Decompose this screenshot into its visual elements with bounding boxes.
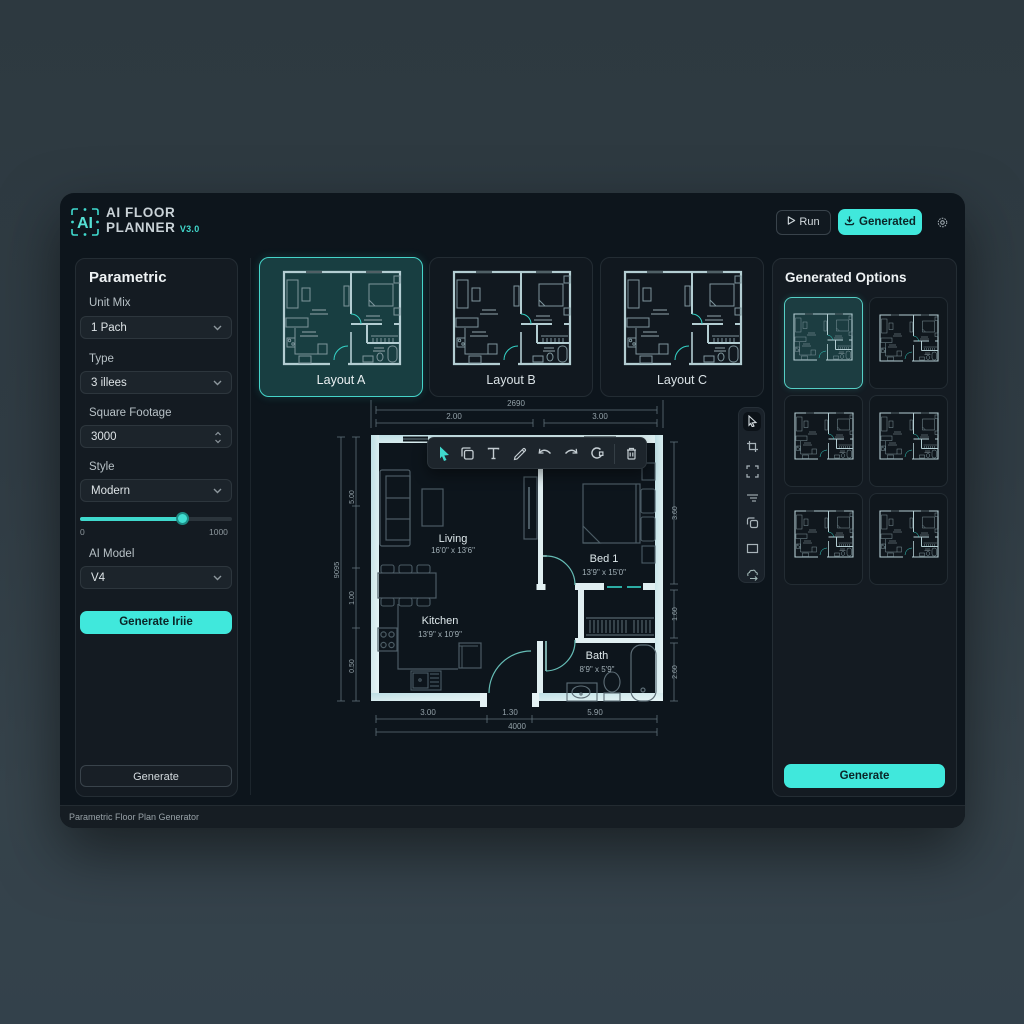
svg-text:Bed 1: Bed 1 bbox=[590, 553, 619, 565]
svg-text:8'9" x 5'9": 8'9" x 5'9" bbox=[580, 665, 615, 674]
svg-text:4000: 4000 bbox=[508, 722, 526, 731]
svg-text:1.00: 1.00 bbox=[349, 591, 356, 605]
svg-text:1.60: 1.60 bbox=[672, 607, 679, 621]
svg-text:1.30: 1.30 bbox=[502, 708, 518, 717]
svg-text:2.60: 2.60 bbox=[672, 665, 679, 679]
svg-text:16'0" x 13'6": 16'0" x 13'6" bbox=[431, 546, 475, 555]
svg-text:Kitchen: Kitchen bbox=[422, 615, 459, 627]
svg-text:9095: 9095 bbox=[332, 562, 341, 579]
svg-text:3.00: 3.00 bbox=[592, 412, 608, 421]
svg-text:13'9" x 10'9": 13'9" x 10'9" bbox=[418, 630, 462, 639]
svg-text:3.60: 3.60 bbox=[672, 506, 679, 520]
svg-text:0.50: 0.50 bbox=[349, 659, 356, 673]
svg-text:Bath: Bath bbox=[586, 650, 609, 662]
svg-text:5.90: 5.90 bbox=[587, 708, 603, 717]
svg-text:3.00: 3.00 bbox=[420, 708, 436, 717]
svg-text:13'9" x 15'0": 13'9" x 15'0" bbox=[582, 568, 626, 577]
svg-text:5.00: 5.00 bbox=[349, 490, 356, 504]
svg-text:Living: Living bbox=[439, 533, 468, 545]
svg-text:2.00: 2.00 bbox=[446, 412, 462, 421]
svg-text:2690: 2690 bbox=[507, 399, 525, 408]
svg-text:AI: AI bbox=[77, 215, 93, 232]
